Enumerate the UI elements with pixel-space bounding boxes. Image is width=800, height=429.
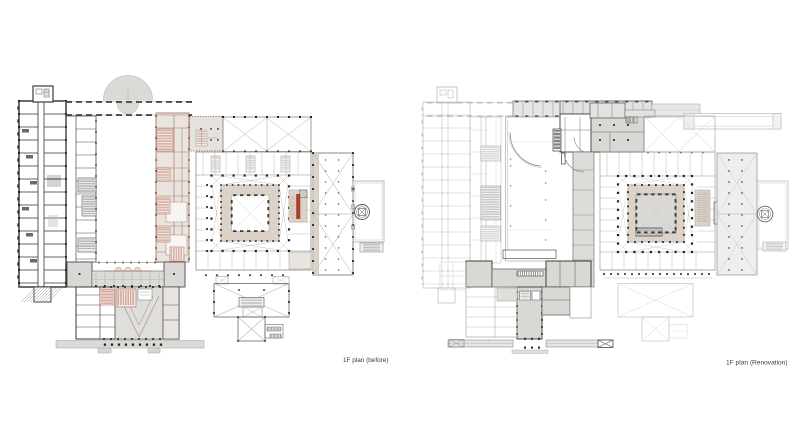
svg-text:1F plan (Renovation): 1F plan (Renovation) xyxy=(726,360,788,367)
svg-text:1F plan (before): 1F plan (before) xyxy=(343,357,388,364)
